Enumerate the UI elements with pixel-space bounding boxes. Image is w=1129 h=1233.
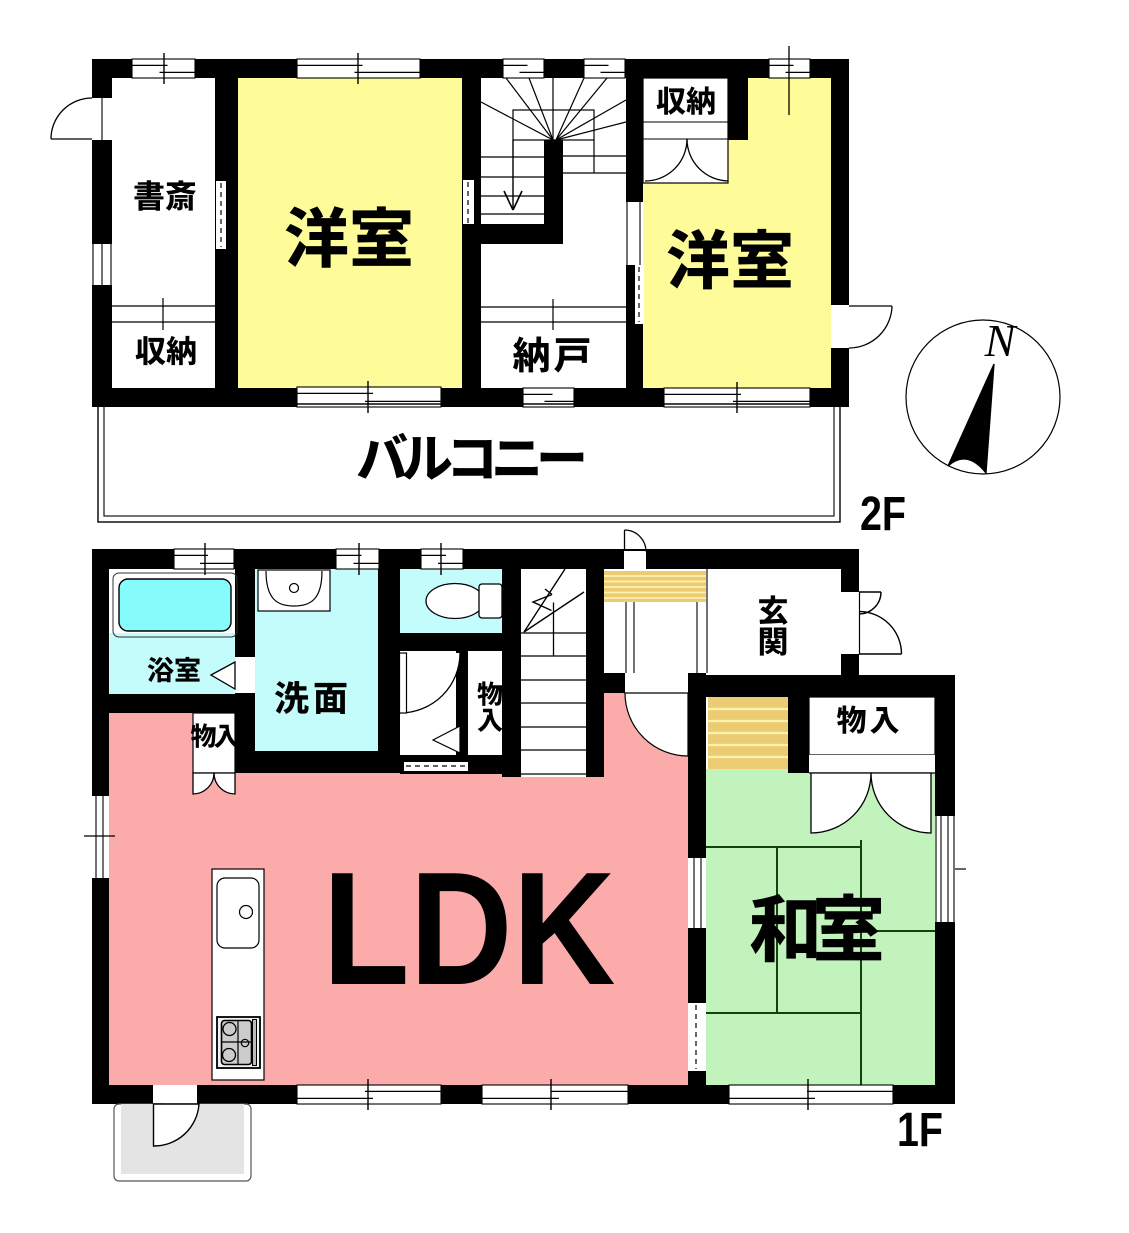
svg-text:LDK: LDK: [323, 839, 616, 1019]
svg-text:1F: 1F: [897, 1104, 943, 1157]
svg-text:2F: 2F: [860, 488, 906, 541]
svg-text:N: N: [984, 315, 1018, 366]
